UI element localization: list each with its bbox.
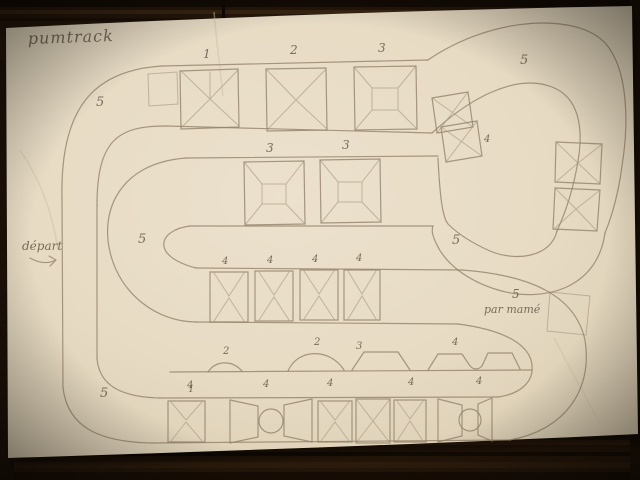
- sketch-photo-canvas: pumtrack départ 5 par mamé 1 2 3 3 3 4 4…: [0, 0, 640, 480]
- photo-vignette: [0, 0, 640, 480]
- photo-of-pumptrack-sketch: pumtrack départ 5 par mamé 1 2 3 3 3 4 4…: [0, 0, 640, 480]
